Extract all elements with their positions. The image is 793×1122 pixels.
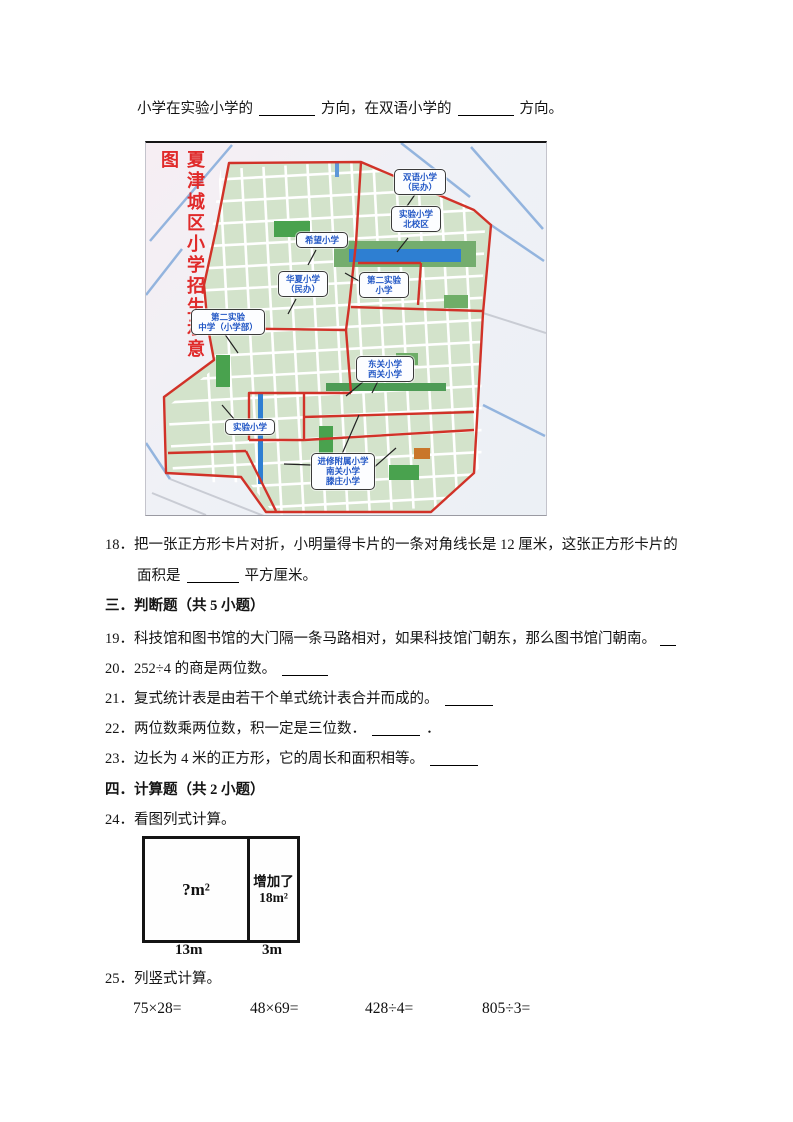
section-3-heading: 三．判断题（共 5 小题） (105, 594, 265, 615)
diagram-width-left-label: 13m (175, 942, 203, 959)
question-25: 25．列竖式计算。 (105, 967, 221, 988)
question-18-line1: 18．把一张正方形卡片对折，小明量得卡片的一条对角线长是 12 厘米，这张正方形… (105, 533, 678, 554)
school-label-dier-shiyan-xiaoxue: 第二实验 小学 (359, 272, 409, 298)
diagram-left-area-label: ?m² (145, 839, 247, 940)
answer-blank (187, 567, 239, 583)
answer-blank (372, 720, 420, 736)
answer-blank (660, 630, 676, 646)
question-22-suffix: ． (426, 721, 441, 737)
question-18-line2-post: 平方厘米。 (245, 568, 318, 584)
calc-item-1: 75×28= (133, 1000, 181, 1018)
calc-item-3: 428÷4= (365, 1000, 413, 1018)
district-map: 夏津城区小学招生示意图 双语小学 （民办） 实验小学 北校区 希望小学 华夏小学… (145, 141, 547, 516)
question-18-line2-pre: 面积是 (137, 568, 181, 584)
answer-blank (430, 750, 478, 766)
intro-line: 小学在实验小学的方向，在双语小学的方向。 (137, 97, 563, 118)
school-label-shuangyu: 双语小学 （民办） (394, 169, 446, 195)
school-label-xiwang: 希望小学 (296, 232, 348, 248)
school-label-dongguan-xiguan: 东关小学 西关小学 (356, 356, 414, 382)
school-label-dier-shiyan-zhongxue: 第二实验 中学（小学部） (191, 309, 265, 335)
school-label-huaxia: 华夏小学 （民办） (278, 271, 328, 297)
diagram-right-line1: 增加了 (253, 874, 294, 890)
question-19: 19．科技馆和图书馆的大门隔一条马路相对，如果科技馆门朝东，那么图书馆门朝南。 (105, 627, 682, 648)
diagram-width-right-label: 3m (262, 942, 282, 959)
intro-text-2: 方向，在双语小学的 (321, 101, 452, 117)
exam-page: 小学在实验小学的方向，在双语小学的方向。 (0, 0, 793, 1122)
question-22: 22．两位数乘两位数，积一定是三位数．． (105, 717, 441, 738)
question-19-text: 19．科技馆和图书馆的大门隔一条马路相对，如果科技馆门朝东，那么图书馆门朝南。 (105, 631, 656, 647)
calc-item-2: 48×69= (250, 1000, 298, 1018)
calc-item-4: 805÷3= (482, 1000, 530, 1018)
school-label-shiyan-north: 实验小学 北校区 (391, 206, 441, 232)
diagram-right-cell: 增加了 18m² (247, 839, 297, 940)
question-20-text: 20．252÷4 的商是两位数。 (105, 661, 276, 677)
answer-blank (282, 660, 328, 676)
section-4-heading: 四．计算题（共 2 小题） (105, 778, 265, 799)
question-23: 23．边长为 4 米的正方形，它的周长和面积相等。 (105, 747, 484, 768)
question-21-text: 21．复式统计表是由若干个单式统计表合并而成的。 (105, 691, 439, 707)
question-18-line2: 面积是平方厘米。 (137, 564, 317, 585)
intro-text-3: 方向。 (520, 101, 564, 117)
answer-blank (259, 100, 315, 116)
question-24: 24．看图列式计算。 (105, 808, 236, 829)
question-22-text: 22．两位数乘两位数，积一定是三位数． (105, 721, 366, 737)
diagram-right-line2: 18m² (259, 890, 288, 906)
question-23-text: 23．边长为 4 米的正方形，它的周长和面积相等。 (105, 751, 424, 767)
school-label-jinxiu-nanguan: 进修附属小学 南关小学 滕庄小学 (311, 453, 375, 490)
school-label-shiyan: 实验小学 (225, 419, 275, 435)
answer-blank (458, 100, 514, 116)
answer-blank (445, 690, 493, 706)
question-20: 20．252÷4 的商是两位数。 (105, 657, 334, 678)
question-21: 21．复式统计表是由若干个单式统计表合并而成的。 (105, 687, 499, 708)
intro-text-1: 小学在实验小学的 (137, 101, 253, 117)
area-diagram: ?m² 增加了 18m² (142, 836, 300, 943)
